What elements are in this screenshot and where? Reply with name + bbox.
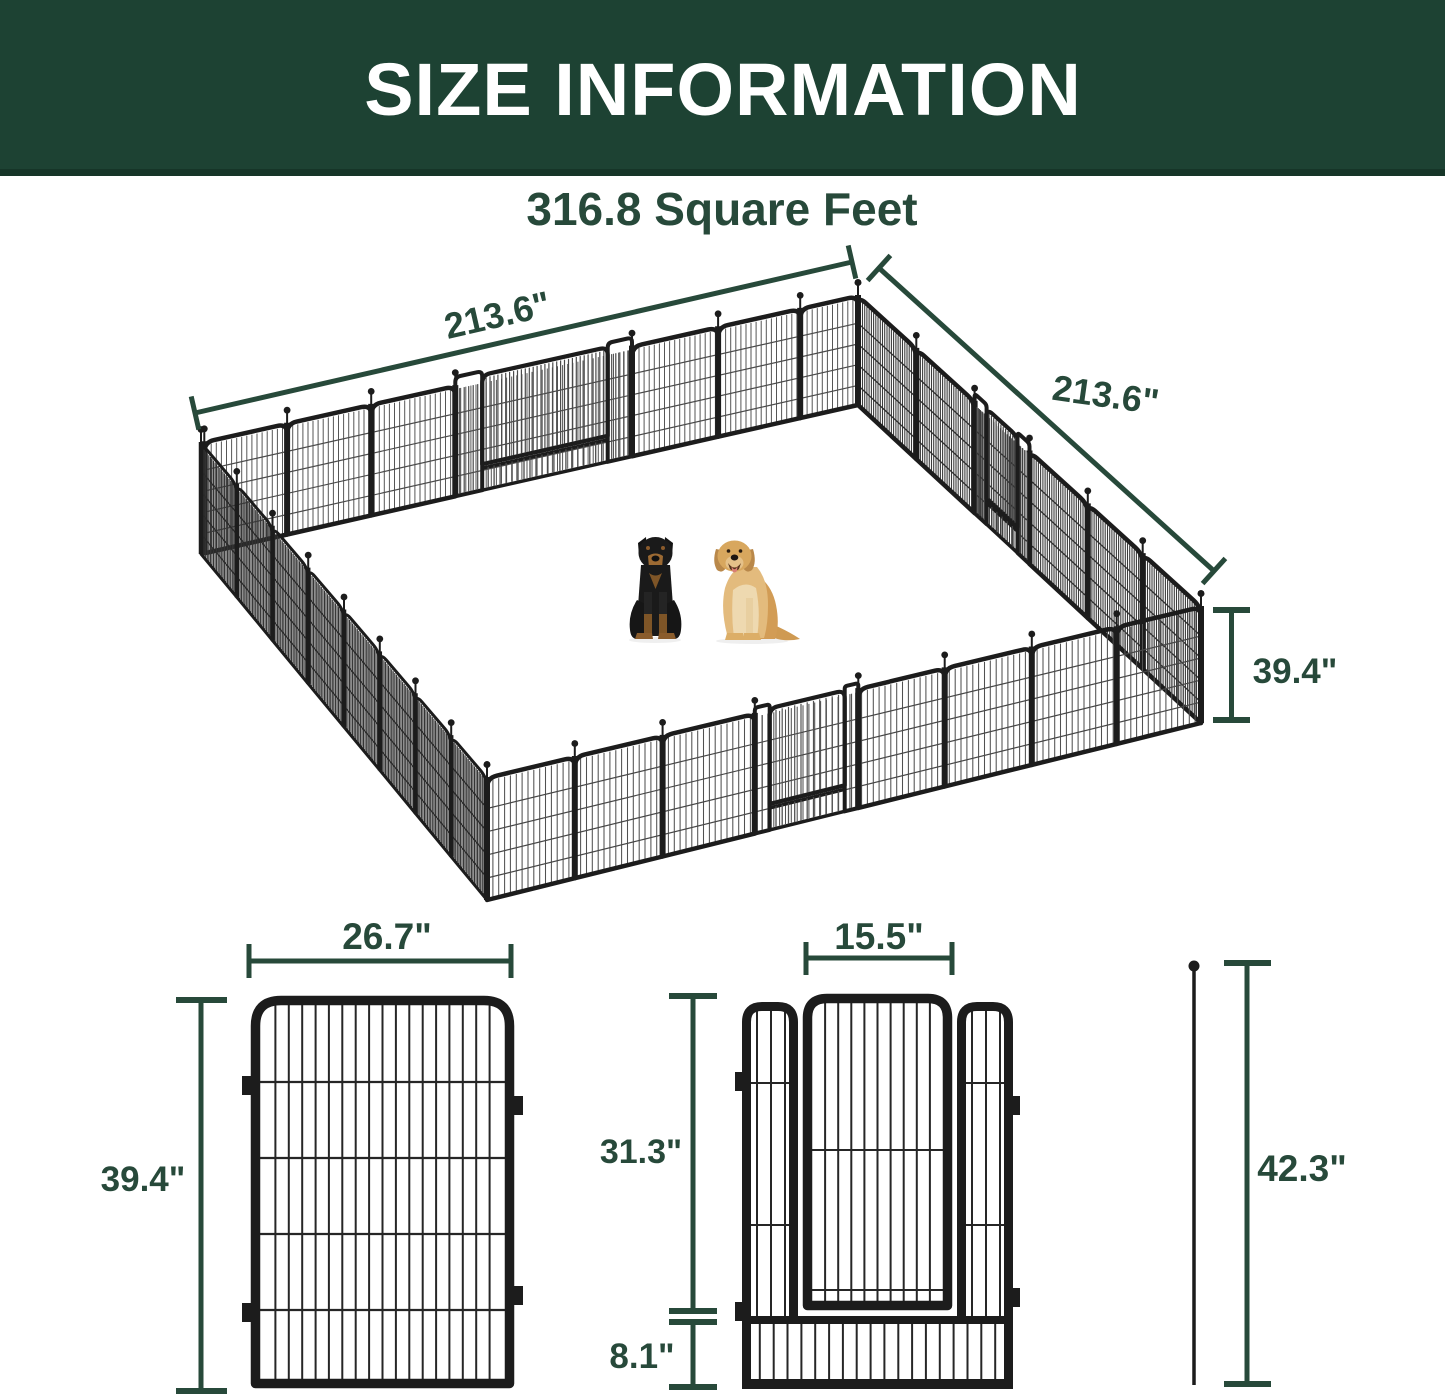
svg-text:15.5": 15.5"	[834, 916, 924, 957]
svg-text:31.3": 31.3"	[600, 1133, 682, 1171]
svg-text:39.4": 39.4"	[101, 1160, 186, 1199]
svg-text:SIZE INFORMATION: SIZE INFORMATION	[364, 48, 1082, 131]
svg-text:42.3": 42.3"	[1257, 1148, 1347, 1189]
svg-text:26.7": 26.7"	[342, 916, 432, 957]
svg-text:213.6": 213.6"	[1050, 367, 1162, 423]
svg-text:213.6": 213.6"	[440, 283, 554, 347]
svg-text:316.8 Square Feet: 316.8 Square Feet	[526, 183, 917, 235]
svg-text:39.4": 39.4"	[1253, 652, 1338, 691]
svg-text:8.1": 8.1"	[609, 1337, 674, 1376]
